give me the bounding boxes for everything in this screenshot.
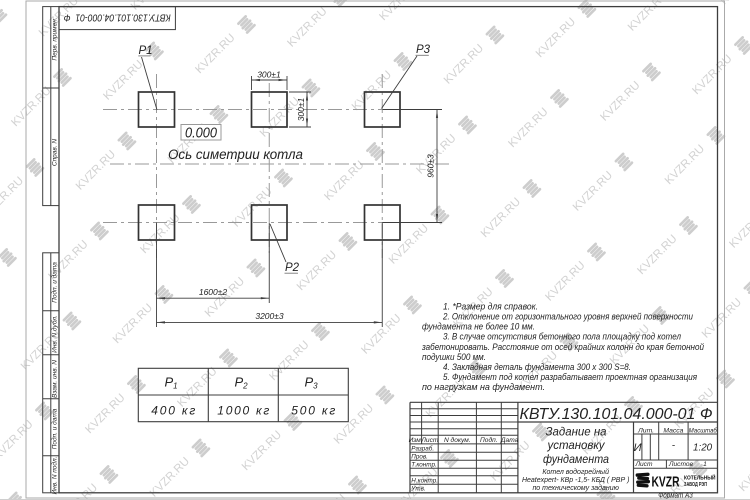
- svg-text:Р2: Р2: [234, 375, 248, 391]
- svg-text:Лист: Лист: [420, 437, 438, 444]
- svg-text:KVZR.RU: KVZR.RU: [304, 492, 348, 500]
- svg-text:1:20: 1:20: [693, 442, 713, 453]
- svg-text:Котел водогрейный: Котел водогрейный: [542, 468, 609, 476]
- svg-text:Масштаб: Масштаб: [689, 426, 718, 434]
- svg-text:Р2: Р2: [285, 262, 300, 274]
- svg-text:забетонировать. Расстояние от: забетонировать. Расстояние от осей крайн…: [421, 342, 704, 352]
- svg-text:2. Отклонение от горизонтально: 2. Отклонение от горизонтального уровня …: [442, 312, 693, 322]
- svg-text:1: 1: [703, 461, 707, 468]
- svg-text:Инв. N дубл.: Инв. N дубл.: [51, 315, 59, 353]
- svg-text:по нагрузкам на фундамент.: по нагрузкам на фундамент.: [422, 382, 545, 392]
- svg-text:KVZR: KVZR: [652, 475, 680, 491]
- svg-text:подушки 500 мм.: подушки 500 мм.: [422, 352, 486, 362]
- svg-text:1000 кг: 1000 кг: [217, 404, 269, 418]
- svg-text:KVZR.RU: KVZR.RU: [727, 206, 750, 250]
- svg-text:3200±3: 3200±3: [255, 311, 284, 321]
- svg-text:Подп.: Подп.: [480, 436, 498, 444]
- svg-text:KVZR.RU: KVZR.RU: [737, 450, 750, 494]
- svg-text:KVZR.RU: KVZR.RU: [56, 482, 100, 500]
- svg-text:Н.контр.: Н.контр.: [411, 478, 438, 485]
- svg-text:Р3: Р3: [304, 375, 318, 391]
- svg-text:Р1: Р1: [164, 375, 177, 391]
- svg-text:KVZR.RU: KVZR.RU: [543, 259, 587, 303]
- svg-text:KVZR.RU: KVZR.RU: [111, 302, 155, 346]
- svg-text:KVZR.RU: KVZR.RU: [534, 16, 578, 60]
- svg-text:KVZR.RU: KVZR.RU: [626, 0, 670, 34]
- svg-text:КВТУ.130.101.04.000-01 Ф: КВТУ.130.101.04.000-01 Ф: [64, 12, 171, 23]
- svg-text:Задание на: Задание на: [546, 425, 607, 439]
- svg-text:по техническому заданию: по техническому заданию: [532, 484, 619, 492]
- svg-text:Лит.: Лит.: [637, 427, 654, 434]
- svg-text:Формат А3: Формат А3: [658, 491, 693, 500]
- svg-text:KVZR.RU: KVZR.RU: [0, 418, 36, 462]
- svg-text:KVZR.RU: KVZR.RU: [442, 42, 486, 86]
- svg-text:KVZR.RU: KVZR.RU: [74, 148, 118, 192]
- svg-text:КВТУ.130.101.04.000-01 Ф: КВТУ.130.101.04.000-01 Ф: [520, 406, 713, 423]
- svg-text:Разраб.: Разраб.: [411, 445, 434, 453]
- svg-text:300±1: 300±1: [296, 97, 306, 121]
- svg-text:Взам. инв. N: Взам. инв. N: [52, 360, 59, 398]
- svg-text:фундамента: фундамента: [543, 452, 609, 466]
- svg-text:KVZR.RU: KVZR.RU: [350, 69, 394, 113]
- svg-text:KVZR.RU: KVZR.RU: [83, 392, 127, 436]
- svg-text:Перв. примен.: Перв. примен.: [52, 17, 59, 60]
- svg-text:500 кг: 500 кг: [291, 404, 335, 418]
- svg-text:0.000: 0.000: [185, 126, 217, 142]
- svg-text:KVZR.RU: KVZR.RU: [9, 85, 53, 129]
- svg-text:5. Фундамент под котел разраба: 5. Фундамент под котел разрабатывает про…: [443, 372, 697, 382]
- svg-text:KVZR.RU: KVZR.RU: [359, 312, 403, 356]
- svg-text:KVZR.RU: KVZR.RU: [663, 143, 707, 187]
- svg-text:Утв.: Утв.: [410, 486, 425, 493]
- svg-text:1. *Размер для справок.: 1. *Размер для справок.: [443, 302, 538, 312]
- svg-text:KVZR.RU: KVZR.RU: [295, 249, 339, 293]
- svg-text:Т.контр.: Т.контр.: [411, 462, 436, 469]
- svg-text:300±1: 300±1: [257, 70, 281, 80]
- svg-text:KVZR.RU: KVZR.RU: [377, 0, 421, 23]
- svg-text:Heatexpert- КВр -1,5- КБД ( РВ: Heatexpert- КВр -1,5- КБД ( РВР ): [522, 477, 629, 484]
- svg-text:Подп. и дата: Подп. и дата: [51, 262, 59, 303]
- svg-text:4. Закладная деталь фундамента: 4. Закладная деталь фундамента 300 х 300…: [443, 362, 631, 372]
- svg-text:400 кг: 400 кг: [151, 404, 195, 418]
- svg-text:1600±2: 1600±2: [199, 287, 228, 297]
- svg-text:KVZR.RU: KVZR.RU: [690, 53, 734, 97]
- svg-text:KVZR.RU: KVZR.RU: [322, 159, 366, 203]
- svg-text:KVZR.RU: KVZR.RU: [571, 169, 615, 213]
- svg-text:установку: установку: [547, 438, 606, 452]
- svg-text:Пров.: Пров.: [411, 454, 428, 461]
- svg-text:KVZR.RU: KVZR.RU: [138, 212, 182, 256]
- svg-text:960±3: 960±3: [426, 154, 436, 178]
- svg-text:И: И: [634, 442, 642, 454]
- svg-text:Инв. N подл.: Инв. N подл.: [51, 456, 59, 494]
- svg-text:Ось симетрии котла: Ось симетрии котла: [168, 147, 303, 162]
- svg-text:KVZR.RU: KVZR.RU: [203, 275, 247, 319]
- svg-text:Справ. N: Справ. N: [52, 139, 59, 167]
- svg-text:KVZR.RU: KVZR.RU: [240, 429, 284, 473]
- svg-text:N докум.: N докум.: [444, 436, 471, 444]
- svg-text:KVZR.RU: KVZR.RU: [414, 132, 458, 176]
- svg-text:Подп. и дата: Подп. и дата: [51, 408, 59, 449]
- svg-text:KVZR.RU: KVZR.RU: [193, 32, 237, 76]
- svg-text:КОТЕЛЬНЫЙ: КОТЕЛЬНЫЙ: [684, 473, 716, 481]
- svg-text:Лист: Лист: [635, 461, 653, 468]
- svg-text:KVZR.RU: KVZR.RU: [285, 5, 329, 49]
- svg-text:ЗАВОД РЭП: ЗАВОД РЭП: [684, 482, 707, 488]
- svg-text:-: -: [672, 441, 676, 452]
- svg-text:KVZR.RU: KVZR.RU: [332, 402, 376, 446]
- svg-text:3. В случае отсутствия бетонно: 3. В случае отсутствия бетонного пола пл…: [443, 332, 681, 342]
- svg-text:KVZR.RU: KVZR.RU: [635, 233, 679, 277]
- svg-text:KVZR.RU: KVZR.RU: [387, 222, 431, 266]
- svg-text:KVZR.RU: KVZR.RU: [700, 296, 744, 340]
- svg-text:Дата: Дата: [500, 437, 519, 444]
- svg-text:KVZR.RU: KVZR.RU: [598, 79, 642, 123]
- svg-text:фундамента не более 10 мм.: фундамента не более 10 мм.: [422, 322, 535, 332]
- svg-text:Листов: Листов: [668, 461, 694, 468]
- svg-text:Р1: Р1: [139, 45, 153, 57]
- svg-text:KVZR.RU: KVZR.RU: [506, 106, 550, 150]
- svg-text:Р3: Р3: [416, 44, 431, 56]
- svg-text:KVZR.RU: KVZR.RU: [0, 175, 26, 219]
- svg-text:Масса: Масса: [663, 427, 683, 434]
- svg-text:KVZR.RU: KVZR.RU: [479, 196, 523, 240]
